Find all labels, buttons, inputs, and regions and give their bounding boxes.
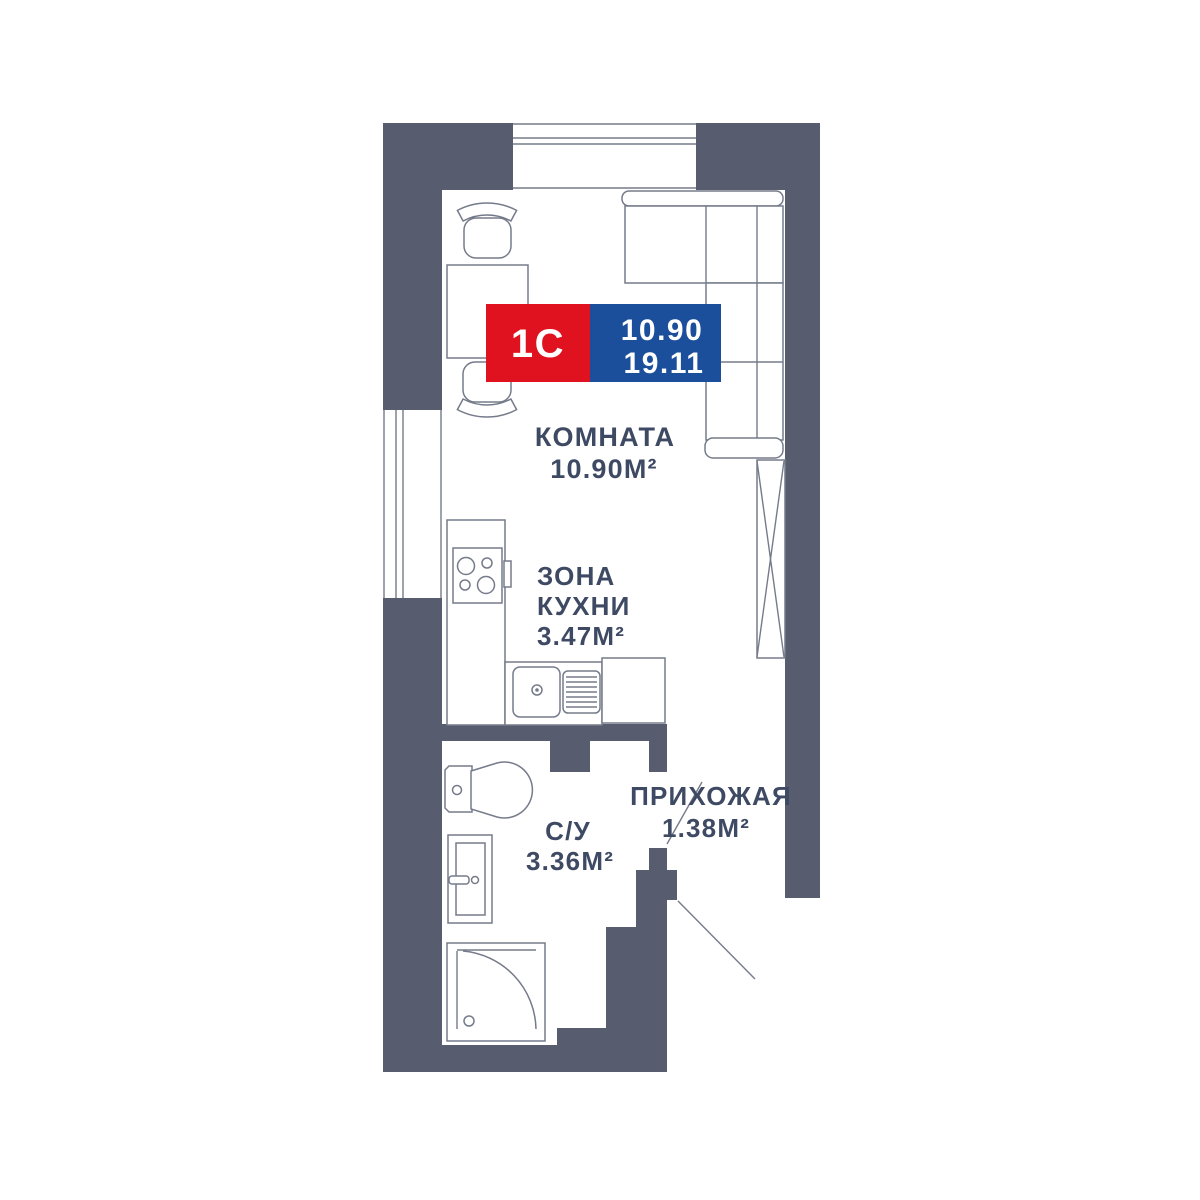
counter-right (602, 658, 665, 723)
room-labels: КОМНАТА 10.90М² ЗОНА КУХНИ 3.47М² С/У 3.… (526, 422, 792, 876)
wall-bath-door-jamb-left (550, 741, 590, 772)
bathroom-label: С/У (545, 816, 591, 846)
window-left (384, 410, 441, 598)
doors (667, 782, 755, 979)
hallway-label: ПРИХОЖАЯ (630, 781, 792, 811)
sink-icon (513, 667, 600, 717)
chair-seat-top-icon (464, 218, 511, 258)
stove-icon (453, 548, 511, 603)
living-room-area: 10.90М² (550, 454, 657, 484)
living-room-label: КОМНАТА (535, 422, 675, 452)
washbasin-icon (448, 835, 492, 923)
kitchen-area: 3.47М² (537, 621, 625, 651)
kitchen-label-line1: ЗОНА (537, 561, 616, 591)
wall-hallway-column (606, 927, 667, 1072)
wall-entry-jamb-lower (636, 900, 667, 927)
unit-type-label: 1С (511, 322, 565, 366)
wall-top-right (696, 123, 820, 190)
wall-bottom (383, 1045, 606, 1072)
sofa-seat-row (625, 206, 783, 283)
window-top (513, 124, 696, 188)
toilet-icon (445, 762, 532, 818)
wall-left-upper (383, 123, 442, 410)
unit-living-area-value: 10.90 (621, 314, 704, 347)
wall-left-lower (383, 598, 442, 1072)
hallway-area: 1.38М² (662, 813, 750, 843)
kitchen-label-line2: КУХНИ (537, 591, 631, 621)
unit-total-area-value: 19.11 (624, 347, 705, 380)
bathroom-area: 3.36М² (526, 846, 614, 876)
shower-icon (447, 943, 545, 1041)
wardrobe (757, 460, 785, 658)
wall-bath-door-jamb-right (649, 741, 667, 772)
sofa-armrest (705, 438, 783, 458)
floor-plan: КОМНАТА 10.90М² ЗОНА КУХНИ 3.47М² С/У 3.… (0, 0, 1200, 1200)
sofa-back-top (622, 191, 783, 206)
entrance-door-leaf (678, 901, 755, 979)
wall-hallway-stub (649, 848, 667, 870)
wall-divider-kitchen-bath (383, 724, 667, 741)
unit-badge: 1С 10.90 19.11 (486, 304, 721, 382)
wall-entry-jamb (636, 870, 677, 900)
bathroom-fixtures (445, 762, 545, 1041)
